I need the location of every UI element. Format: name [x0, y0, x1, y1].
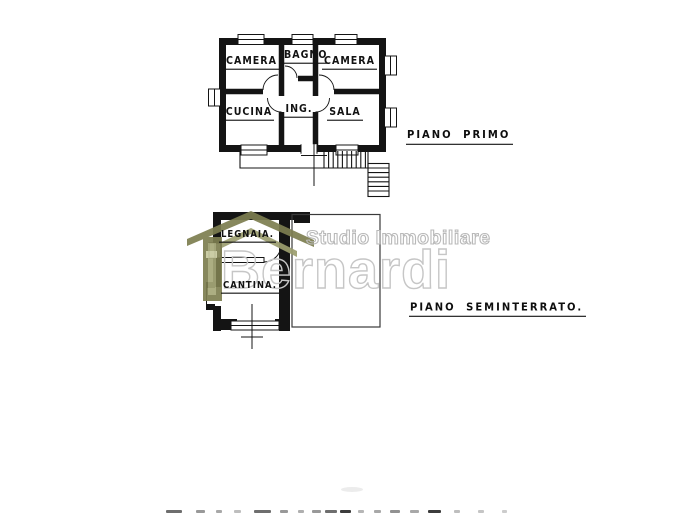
room-label-camera-right: CAMERA: [322, 56, 374, 68]
room-label-cucina: CUCINA: [223, 107, 275, 119]
plan-title-piano-primo: PIANO PRIMO: [406, 129, 513, 141]
room-label-cantina: CANTINA.: [221, 281, 275, 292]
room-label-legnaia: LEGNAIA.: [219, 230, 269, 241]
cantina-window: [231, 321, 279, 330]
plan-title-piano-seminterrato: PIANO SEMINTERRATO.: [409, 301, 586, 313]
room-label-camera-left: CAMERA: [224, 56, 276, 68]
scan-smudge: [341, 487, 363, 492]
room-label-sala: SALA: [320, 107, 370, 119]
balcony-door: [301, 144, 317, 154]
floor-plan-sheet: Studio Immobiliare Bernardi CAMERA BAGNO…: [0, 0, 692, 518]
external-stairs: [368, 164, 389, 197]
room-label-bagno: BAGNO: [282, 50, 316, 62]
room-label-ing: ING.: [283, 104, 315, 116]
